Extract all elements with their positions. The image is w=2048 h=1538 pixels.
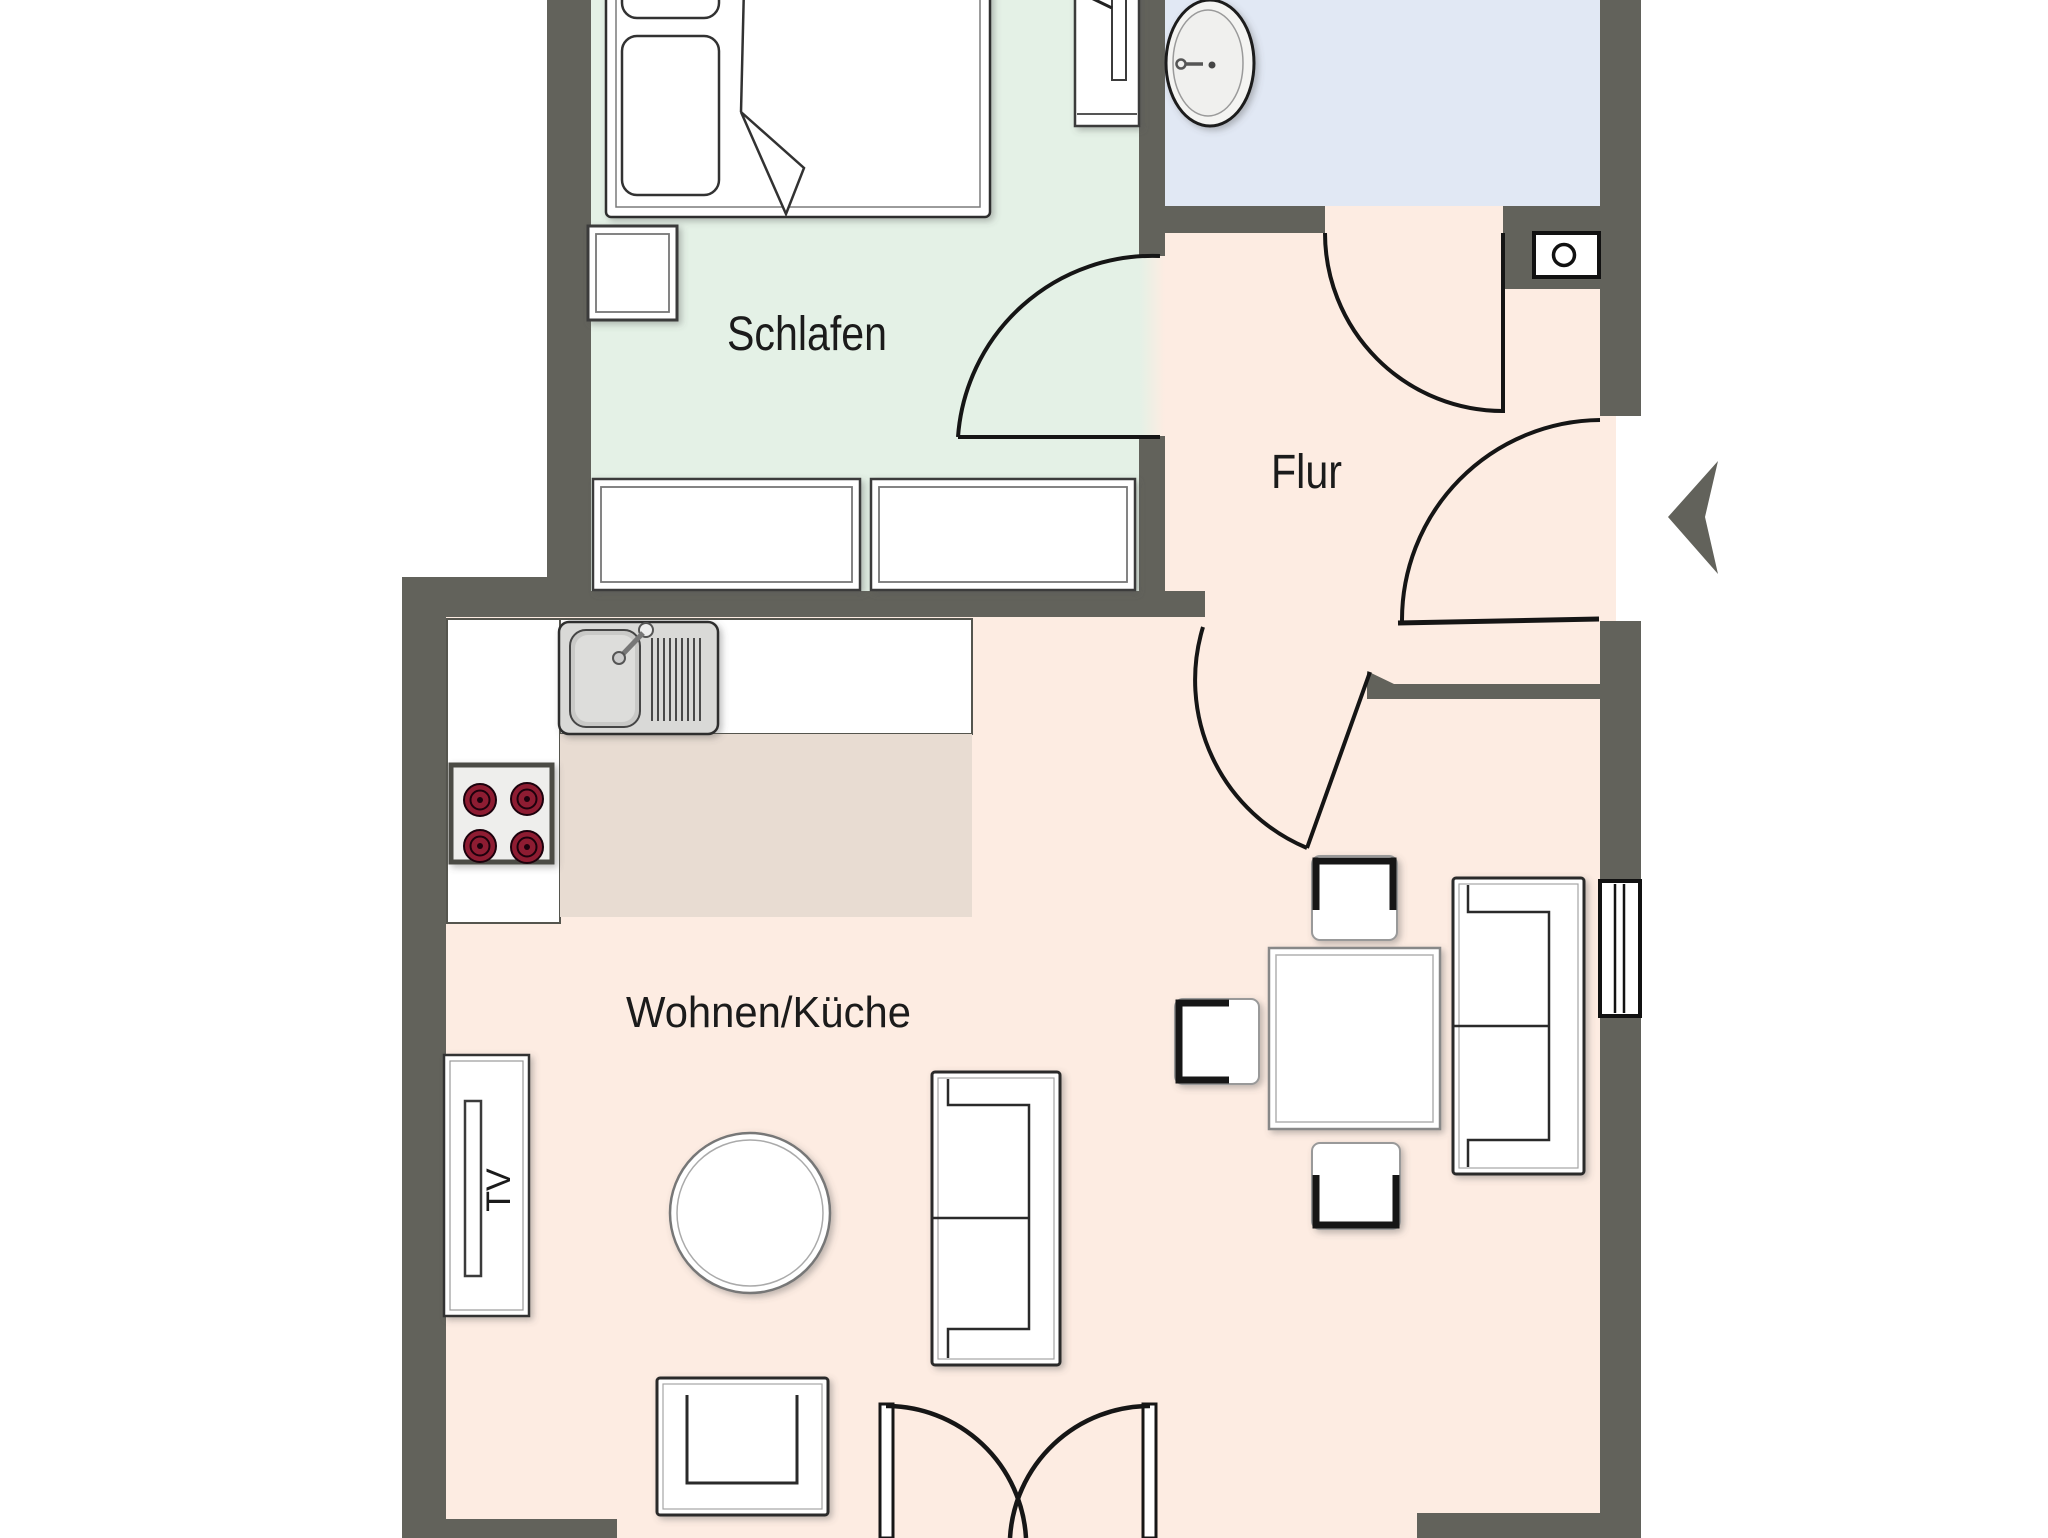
svg-text:Flur: Flur: [1271, 446, 1342, 499]
svg-text:Schlafen: Schlafen: [727, 308, 887, 361]
svg-text:Wohnen/Küche: Wohnen/Küche: [626, 988, 911, 1037]
svg-text:TV: TV: [480, 1168, 518, 1212]
